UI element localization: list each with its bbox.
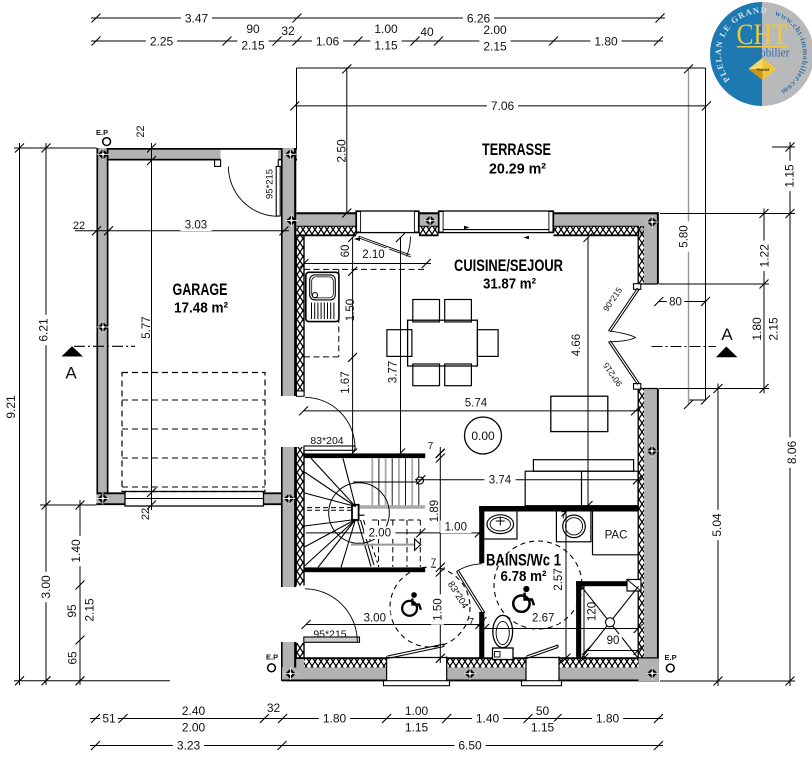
svg-text:A: A xyxy=(721,325,733,344)
svg-text:60: 60 xyxy=(340,245,352,258)
svg-text:90: 90 xyxy=(246,22,260,36)
svg-text:BAINS/Wc 1: BAINS/Wc 1 xyxy=(486,552,561,570)
svg-text:2.40: 2.40 xyxy=(182,704,206,718)
svg-text:3.47: 3.47 xyxy=(185,12,209,26)
svg-text:1.40: 1.40 xyxy=(476,712,500,726)
svg-text:50: 50 xyxy=(536,704,550,718)
svg-text:PAC: PAC xyxy=(605,530,628,542)
svg-text:120: 120 xyxy=(587,602,599,621)
svg-text:2.10: 2.10 xyxy=(362,249,384,261)
svg-text:1.80: 1.80 xyxy=(750,317,764,341)
svg-text:6.21: 6.21 xyxy=(37,318,51,342)
svg-text:CUISINE/SEJOUR: CUISINE/SEJOUR xyxy=(454,257,563,275)
svg-text:3.00: 3.00 xyxy=(364,613,386,625)
svg-text:1.50: 1.50 xyxy=(433,598,445,620)
svg-text:95: 95 xyxy=(65,604,79,618)
svg-text:1.89: 1.89 xyxy=(429,500,441,522)
svg-text:2.15: 2.15 xyxy=(767,317,781,341)
svg-text:2.15: 2.15 xyxy=(483,40,507,54)
svg-text:2.67: 2.67 xyxy=(532,613,554,625)
svg-text:22: 22 xyxy=(73,220,85,232)
svg-text:5.80: 5.80 xyxy=(679,225,691,247)
svg-text:51: 51 xyxy=(102,712,116,726)
svg-text:4.66: 4.66 xyxy=(571,334,583,356)
svg-text:2.00: 2.00 xyxy=(182,721,206,735)
svg-text:6.50: 6.50 xyxy=(458,739,482,753)
svg-text:1.15: 1.15 xyxy=(783,164,797,188)
svg-text:22: 22 xyxy=(135,125,147,137)
svg-text:8.06: 8.06 xyxy=(785,440,799,464)
svg-text:80: 80 xyxy=(669,297,682,309)
svg-text:3.23: 3.23 xyxy=(177,739,201,753)
svg-text:6.78 m²: 6.78 m² xyxy=(501,568,547,585)
svg-text:17.48 m²: 17.48 m² xyxy=(174,300,228,317)
svg-text:A: A xyxy=(65,364,77,383)
svg-text:E.P: E.P xyxy=(96,128,108,137)
svg-text:0.00: 0.00 xyxy=(471,429,495,443)
svg-text:7: 7 xyxy=(561,511,567,522)
svg-text:2.15: 2.15 xyxy=(83,598,97,622)
svg-text:3.74: 3.74 xyxy=(489,475,512,487)
svg-text:TERRASSE: TERRASSE xyxy=(482,141,551,159)
svg-text:FNAIM: FNAIM xyxy=(757,67,770,72)
svg-text:95*215: 95*215 xyxy=(313,629,346,641)
svg-text:20.29 m²: 20.29 m² xyxy=(489,161,546,178)
svg-text:Immobilier: Immobilier xyxy=(739,45,791,60)
svg-text:1.15: 1.15 xyxy=(405,721,429,735)
svg-text:1.67: 1.67 xyxy=(340,371,352,393)
svg-text:1.06: 1.06 xyxy=(316,35,340,49)
svg-text:3.77: 3.77 xyxy=(388,361,400,383)
svg-text:7: 7 xyxy=(431,558,437,569)
svg-text:95*215: 95*215 xyxy=(265,169,276,199)
svg-text:2.15: 2.15 xyxy=(241,39,265,53)
svg-text:5.77: 5.77 xyxy=(141,316,153,338)
svg-text:7: 7 xyxy=(469,617,475,628)
svg-text:22: 22 xyxy=(140,508,152,520)
svg-text:E.P: E.P xyxy=(266,653,278,662)
svg-text:1.15: 1.15 xyxy=(374,39,398,53)
svg-text:7.06: 7.06 xyxy=(491,99,515,113)
svg-text:2.57: 2.57 xyxy=(553,568,565,590)
svg-text:3.03: 3.03 xyxy=(185,220,207,232)
svg-text:32: 32 xyxy=(281,24,295,38)
svg-text:1.80: 1.80 xyxy=(594,35,618,49)
svg-text:1.00: 1.00 xyxy=(445,522,467,534)
svg-text:2.25: 2.25 xyxy=(150,35,174,49)
svg-text:31.87 m²: 31.87 m² xyxy=(483,276,536,293)
svg-text:1.40: 1.40 xyxy=(69,539,83,563)
svg-text:5.04: 5.04 xyxy=(710,513,724,537)
svg-text:1.80: 1.80 xyxy=(323,712,347,726)
svg-text:1.80: 1.80 xyxy=(596,712,620,726)
svg-text:40: 40 xyxy=(420,25,434,39)
svg-text:1.22: 1.22 xyxy=(758,244,772,268)
svg-text:3.00: 3.00 xyxy=(39,575,53,599)
svg-text:90: 90 xyxy=(607,635,620,647)
svg-text:32: 32 xyxy=(267,701,281,715)
svg-text:2.50: 2.50 xyxy=(335,139,349,163)
svg-text:83*204: 83*204 xyxy=(310,435,343,447)
svg-text:E.P: E.P xyxy=(665,653,677,662)
svg-text:7: 7 xyxy=(428,441,434,452)
svg-text:65: 65 xyxy=(66,651,80,665)
svg-text:1.15: 1.15 xyxy=(531,721,555,735)
svg-text:2.00: 2.00 xyxy=(369,528,391,540)
svg-text:1.50: 1.50 xyxy=(345,299,357,321)
svg-text:1.00: 1.00 xyxy=(405,704,429,718)
svg-text:GARAGE: GARAGE xyxy=(173,281,228,299)
svg-text:2.00: 2.00 xyxy=(483,23,507,37)
svg-text:1.00: 1.00 xyxy=(374,22,398,36)
svg-text:5.74: 5.74 xyxy=(465,398,488,410)
svg-text:9.21: 9.21 xyxy=(4,395,18,419)
